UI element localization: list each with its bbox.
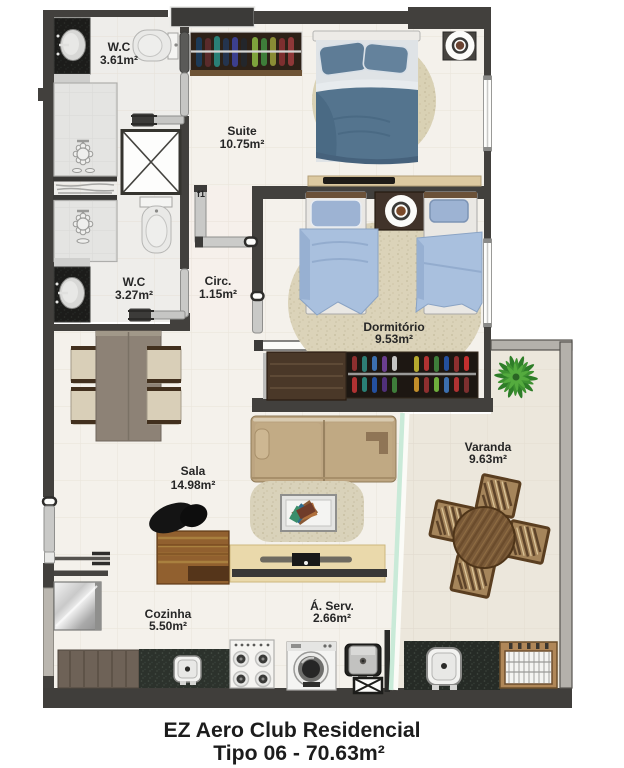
svg-text:W.C: W.C [108,40,131,54]
svg-text:Tipo 06 - 70.63m²: Tipo 06 - 70.63m² [213,742,385,765]
svg-text:W.C: W.C [123,275,146,289]
svg-text:2.66m²: 2.66m² [313,611,351,625]
svg-text:3.61m²: 3.61m² [100,53,138,67]
svg-text:f1: f1 [197,189,205,199]
svg-text:3.27m²: 3.27m² [115,288,153,302]
svg-text:Circ.: Circ. [205,274,232,288]
svg-text:1.15m²: 1.15m² [199,287,237,301]
svg-text:5.50m²: 5.50m² [149,619,187,633]
svg-text:Sala: Sala [181,464,206,478]
svg-text:9.63m²: 9.63m² [469,452,507,466]
svg-text:EZ Aero Club Residencial: EZ Aero Club Residencial [163,719,420,742]
svg-text:10.75m²: 10.75m² [220,137,265,151]
svg-text:14.98m²: 14.98m² [171,478,216,492]
svg-text:9.53m²: 9.53m² [375,332,413,346]
svg-text:Suite: Suite [227,124,257,138]
